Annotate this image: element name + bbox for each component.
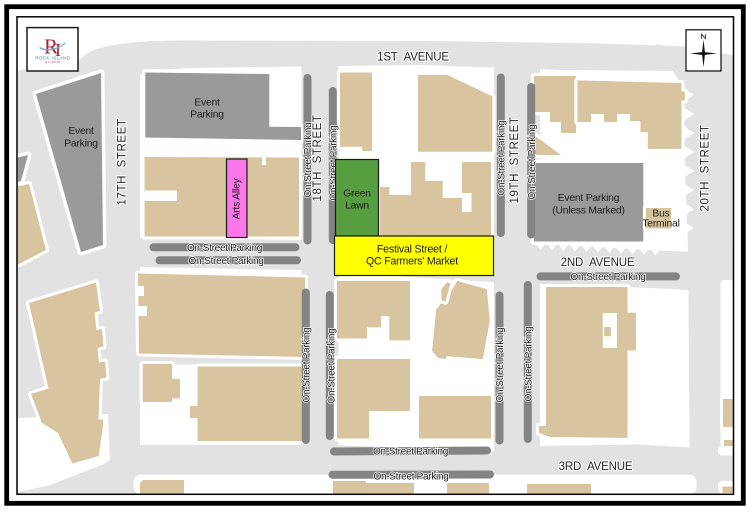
svg-text:Parking: Parking — [190, 110, 224, 121]
svg-text:On-Street Parking: On-Street Parking — [189, 256, 264, 267]
svg-text:Lawn: Lawn — [345, 201, 369, 212]
svg-text:Arts Alley: Arts Alley — [232, 177, 243, 219]
svg-text:Parking: Parking — [64, 139, 98, 150]
svg-text:On-Street Parking: On-Street Parking — [373, 447, 448, 458]
svg-text:On-Street Parking: On-Street Parking — [527, 125, 538, 200]
svg-text:Event: Event — [194, 98, 220, 109]
svg-text:19TH STREET: 19TH STREET — [509, 116, 521, 203]
svg-text:On-Street Parking: On-Street Parking — [571, 272, 646, 283]
svg-text:2ND AVENUE: 2ND AVENUE — [561, 257, 635, 269]
svg-text:ILLINOIS: ILLINOIS — [45, 60, 61, 64]
svg-text:3RD AVENUE: 3RD AVENUE — [559, 461, 633, 473]
svg-text:Event Parking: Event Parking — [558, 193, 620, 204]
svg-text:Green: Green — [343, 188, 371, 199]
svg-text:1ST AVENUE: 1ST AVENUE — [377, 51, 449, 63]
svg-text:Festival Street /: Festival Street / — [377, 243, 447, 255]
svg-text:18TH STREET: 18TH STREET — [312, 114, 324, 201]
svg-text:On-Street Parking: On-Street Parking — [495, 328, 506, 403]
svg-text:On-Street Parking: On-Street Parking — [301, 328, 312, 403]
svg-text:Event: Event — [68, 126, 94, 137]
svg-text:Terminal: Terminal — [642, 219, 679, 230]
svg-text:On-Street Parking: On-Street Parking — [523, 327, 534, 402]
svg-text:On-Street Parking: On-Street Parking — [374, 471, 449, 482]
svg-text:17TH STREET: 17TH STREET — [117, 118, 129, 205]
svg-text:On-Street Parking: On-Street Parking — [187, 243, 262, 254]
svg-text:20TH STREET: 20TH STREET — [700, 124, 712, 211]
svg-text:QC Farmers' Market: QC Farmers' Market — [366, 256, 458, 268]
svg-text:On-Street Parking: On-Street Parking — [496, 121, 507, 196]
svg-text:On-Street Parking: On-Street Parking — [326, 329, 337, 404]
svg-text:(Unless Marked): (Unless Marked) — [552, 206, 625, 217]
